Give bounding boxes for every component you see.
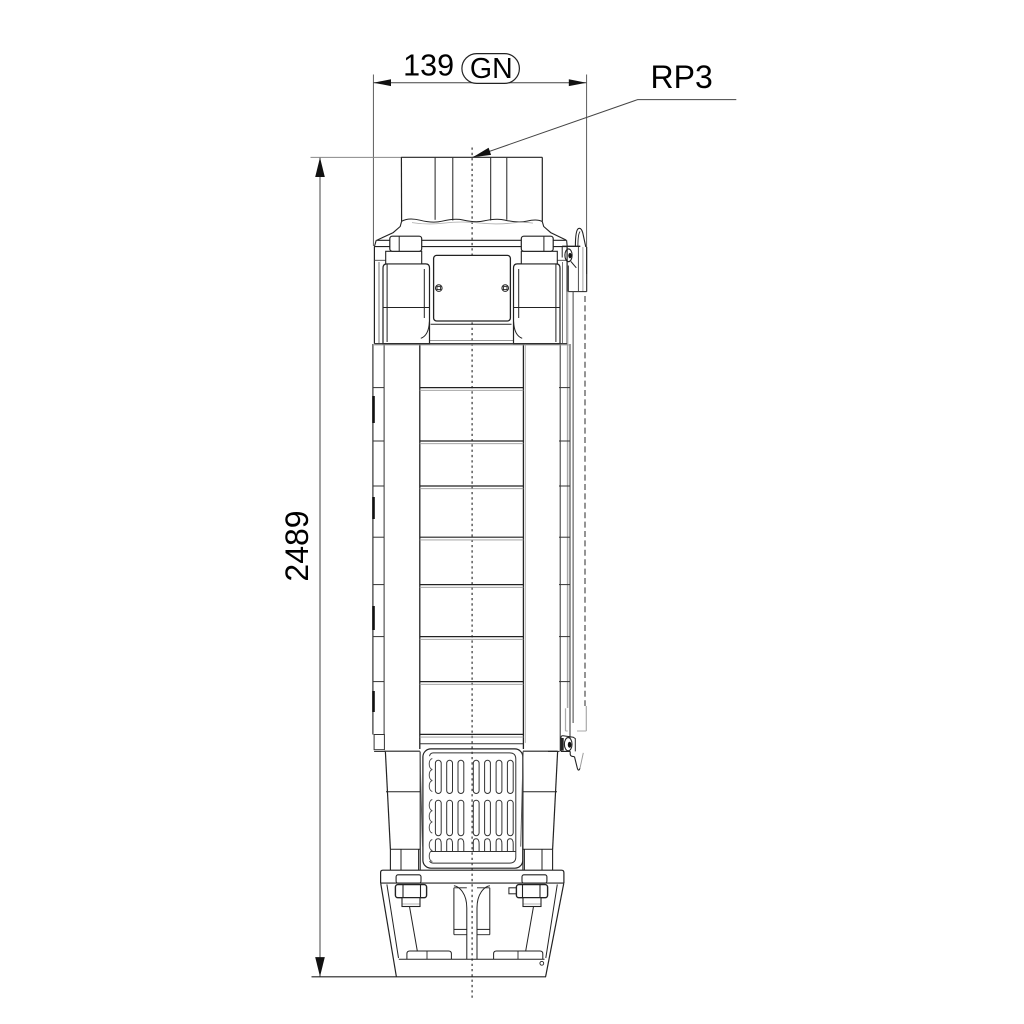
svg-text:RP3: RP3 [651, 59, 713, 95]
svg-text:2489: 2489 [279, 510, 315, 581]
svg-text:139: 139 [403, 49, 454, 83]
svg-text:GN: GN [470, 53, 513, 85]
